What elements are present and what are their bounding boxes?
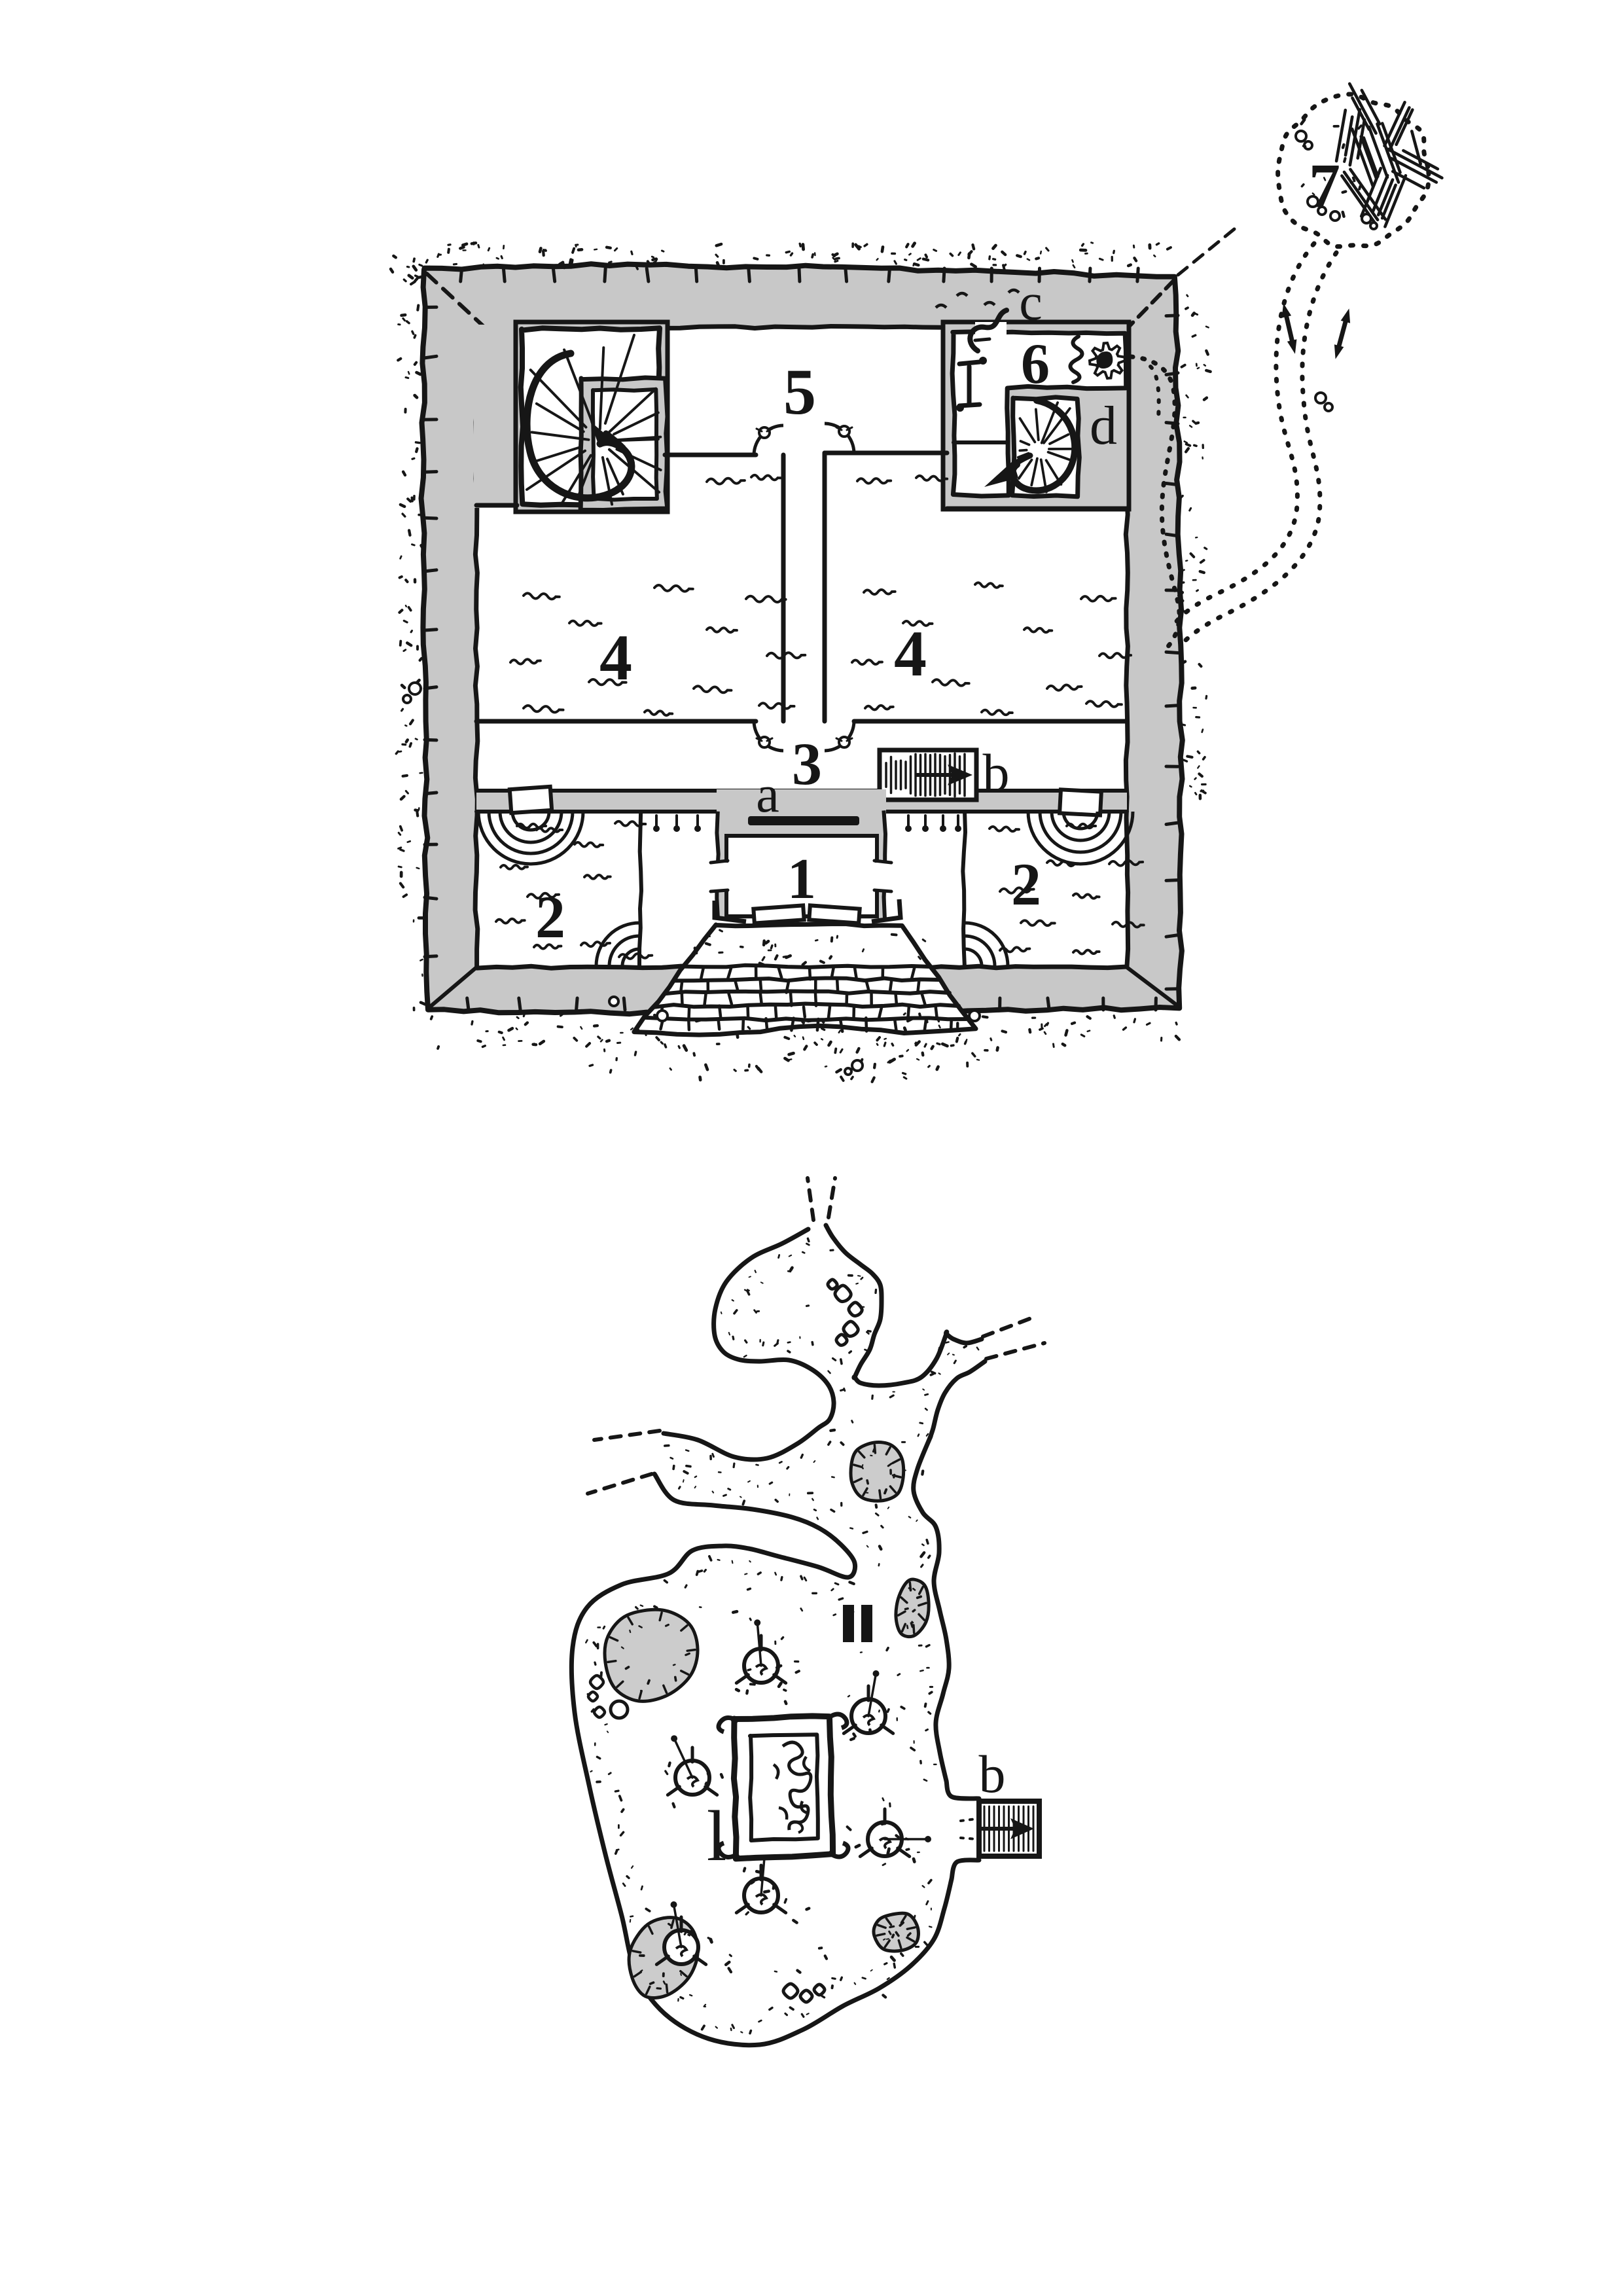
svg-text:6: 6 bbox=[1021, 332, 1050, 396]
svg-text:1: 1 bbox=[787, 848, 816, 911]
svg-text:b: b bbox=[979, 1744, 1006, 1804]
svg-text:d: d bbox=[1090, 395, 1117, 456]
svg-text:c: c bbox=[1019, 274, 1043, 331]
svg-text:2: 2 bbox=[535, 884, 565, 950]
svg-text:b: b bbox=[983, 743, 1010, 802]
svg-text:3: 3 bbox=[792, 730, 822, 797]
svg-text:a: a bbox=[756, 766, 779, 823]
svg-text:4: 4 bbox=[599, 621, 632, 694]
svg-text:5: 5 bbox=[783, 355, 816, 428]
svg-text:7: 7 bbox=[1309, 151, 1340, 221]
svg-text:l: l bbox=[707, 1796, 727, 1876]
svg-text:2: 2 bbox=[1011, 851, 1041, 918]
svg-text:4: 4 bbox=[894, 617, 927, 690]
